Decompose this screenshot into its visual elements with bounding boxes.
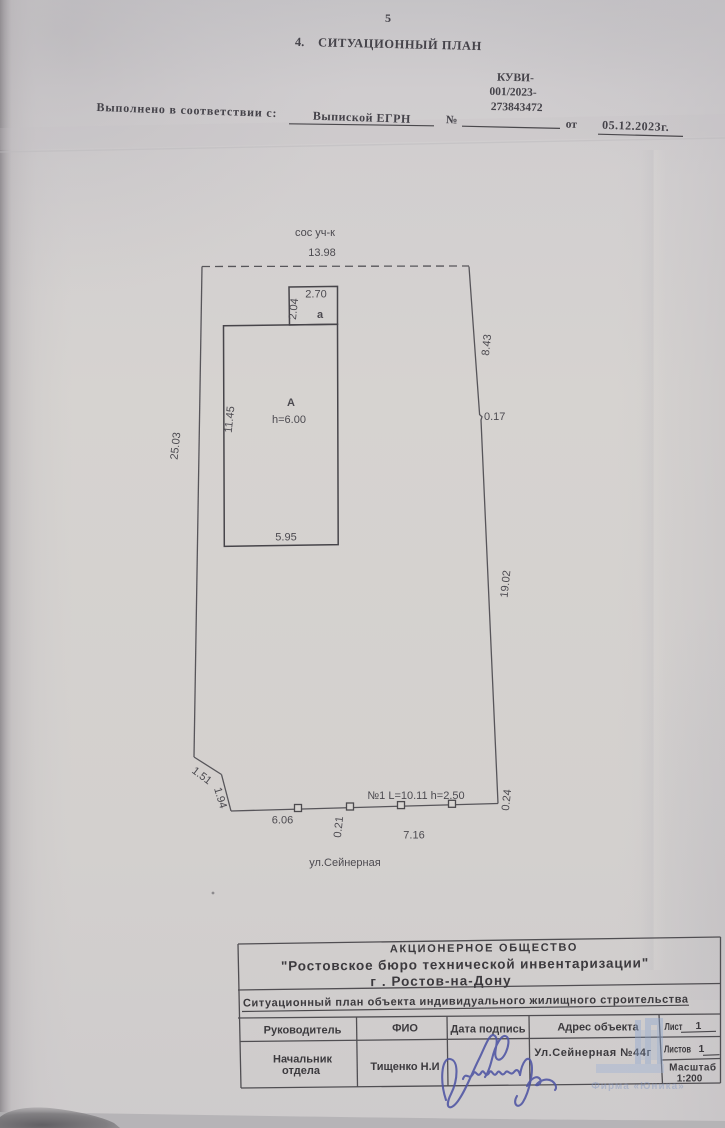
svg-text:2.70: 2.70 bbox=[305, 289, 326, 301]
svg-text:ФИО: ФИО bbox=[392, 1023, 418, 1035]
svg-text:2.04: 2.04 bbox=[287, 298, 301, 321]
svg-text:8.43: 8.43 bbox=[480, 334, 494, 357]
svg-text:"Ростовское бюро технической и: "Ростовское бюро технической инвентариза… bbox=[281, 955, 649, 973]
svg-text:0.21: 0.21 bbox=[332, 816, 346, 839]
svg-text:сос уч-к: сос уч-к bbox=[295, 227, 335, 239]
svg-text:001/2023-: 001/2023- bbox=[489, 86, 537, 99]
svg-text:Фирма «Юника»: Фирма «Юника» bbox=[591, 1081, 684, 1092]
svg-text:№: № bbox=[446, 114, 458, 126]
svg-text:4.: 4. bbox=[295, 35, 305, 49]
svg-text:5: 5 bbox=[385, 11, 391, 25]
svg-text:г . Ростов-на-Дону: г . Ростов-на-Дону bbox=[370, 973, 511, 989]
svg-text:0.17: 0.17 bbox=[484, 411, 505, 423]
svg-text:1: 1 bbox=[699, 1043, 705, 1055]
svg-text:Ул.Сейнерная №44г: Ул.Сейнерная №44г bbox=[534, 1047, 651, 1059]
svg-text:7.16: 7.16 bbox=[403, 830, 424, 842]
svg-text:05.12.2023г.: 05.12.2023г. bbox=[602, 118, 670, 134]
svg-text:Тищенко Н.И: Тищенко Н.И bbox=[370, 1061, 439, 1073]
svg-text:h=6.00: h=6.00 bbox=[272, 414, 306, 426]
svg-text:Адрес объекта: Адрес объекта bbox=[557, 1022, 639, 1034]
svg-text:Дата подпись: Дата подпись bbox=[450, 1024, 525, 1036]
svg-text:Начальник: Начальник bbox=[273, 1054, 332, 1066]
svg-text:273843472: 273843472 bbox=[491, 101, 543, 114]
svg-text:№1 L=10.11 h=2.50: №1 L=10.11 h=2.50 bbox=[367, 790, 464, 802]
svg-text:отдела: отдела bbox=[282, 1065, 321, 1077]
svg-text:А: А bbox=[287, 397, 295, 409]
svg-text:КУВИ-: КУВИ- bbox=[497, 72, 534, 85]
svg-text:Масштаб: Масштаб bbox=[669, 1062, 716, 1074]
svg-text:6.06: 6.06 bbox=[272, 815, 293, 827]
svg-text:Листов: Листов bbox=[664, 1043, 691, 1055]
svg-text:0.24: 0.24 bbox=[500, 789, 514, 812]
svg-text:5.95: 5.95 bbox=[275, 532, 296, 544]
svg-text:Руководитель: Руководитель bbox=[264, 1025, 342, 1037]
svg-text:13.98: 13.98 bbox=[308, 247, 336, 259]
svg-text:АКЦИОНЕРНОЕ ОБЩЕСТВО: АКЦИОНЕРНОЕ ОБЩЕСТВО bbox=[390, 942, 578, 956]
svg-text:а: а bbox=[317, 309, 324, 321]
svg-text:ул.Сейнерная: ул.Сейнерная bbox=[309, 857, 380, 869]
svg-text:от: от bbox=[566, 119, 578, 131]
svg-text:Лист: Лист bbox=[665, 1021, 683, 1033]
svg-text:1: 1 bbox=[696, 1020, 702, 1032]
